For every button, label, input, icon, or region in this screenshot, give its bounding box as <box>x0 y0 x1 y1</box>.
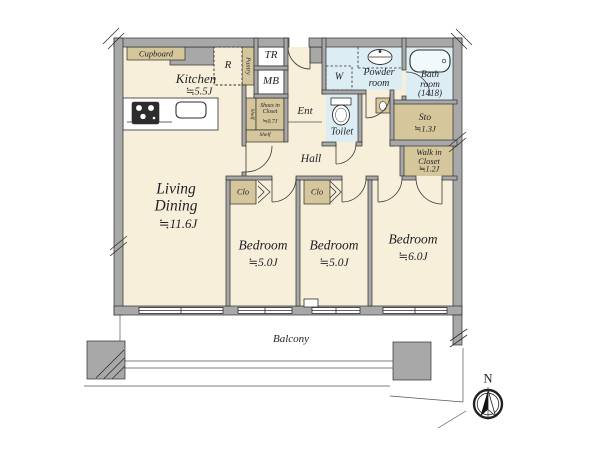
shoes-closet-box <box>256 98 284 130</box>
pillar-right <box>393 342 431 380</box>
refrigerator-space <box>214 47 242 85</box>
room-storage <box>394 104 457 140</box>
shoes-closet-shelf-bottom <box>246 130 284 142</box>
room-walkin-closet <box>404 146 457 176</box>
kitchen-counter <box>123 98 218 130</box>
wall-vent-box <box>304 299 318 307</box>
stove-icon <box>132 102 159 124</box>
sink-icon <box>176 102 206 118</box>
basin-oval <box>380 102 387 111</box>
pantry-box <box>242 47 254 85</box>
entry-void <box>310 47 322 63</box>
closet-bedroom2 <box>304 180 330 204</box>
floor-plan-drawing <box>0 0 600 450</box>
cupboard-box <box>127 47 185 60</box>
shoes-closet-shelf-left <box>246 98 256 130</box>
floor-plan: Cupboard Kitchen ≒5.5J R Pantry TR MB Po… <box>0 0 600 450</box>
pillar-left <box>87 341 125 379</box>
balcony-structure <box>84 315 466 428</box>
closet-bedroom1 <box>230 180 256 204</box>
trunk-room-box <box>258 47 284 66</box>
compass <box>474 387 502 420</box>
meter-box <box>258 70 284 94</box>
toilet-icon <box>331 98 351 125</box>
bathtub-icon <box>410 50 450 72</box>
